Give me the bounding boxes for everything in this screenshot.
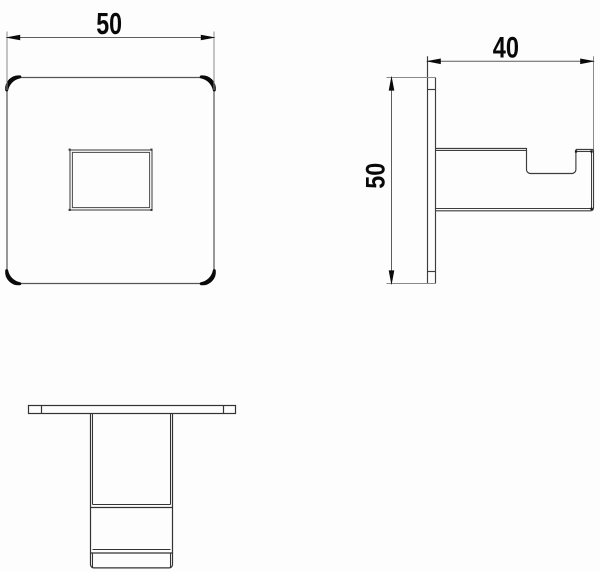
svg-text:40: 40 (493, 31, 519, 64)
svg-text:50: 50 (360, 163, 390, 189)
svg-text:50: 50 (96, 7, 122, 41)
